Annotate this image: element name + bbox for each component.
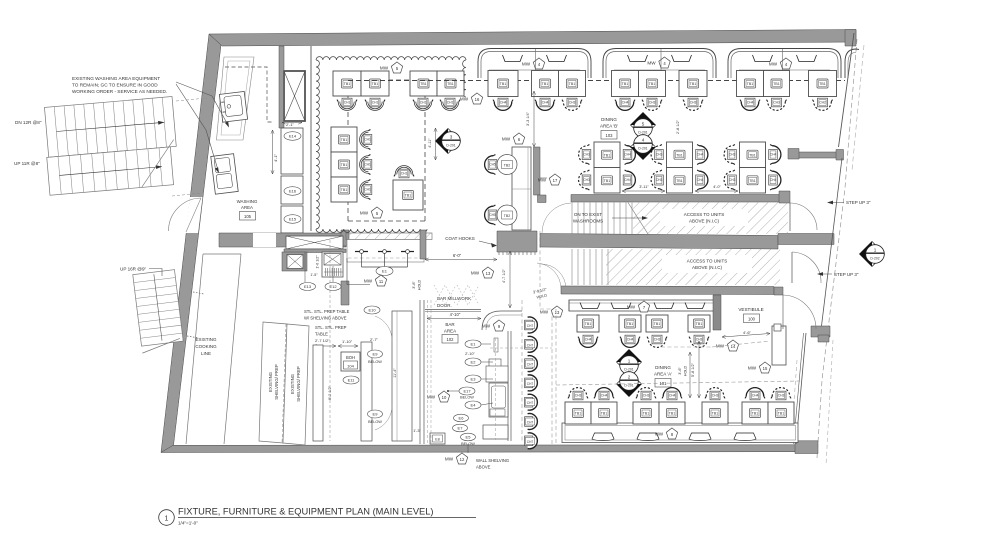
- svg-text:MW: MW: [380, 66, 389, 71]
- svg-text:DINING: DINING: [655, 365, 671, 370]
- svg-text:CH4: CH4: [770, 153, 777, 157]
- svg-text:TB1: TB1: [649, 82, 655, 86]
- svg-text:3'-8": 3'-8": [412, 281, 416, 289]
- svg-text:CH4: CH4: [770, 178, 777, 182]
- svg-text:CH3: CH3: [654, 338, 661, 342]
- svg-text:TB1: TB1: [819, 82, 825, 86]
- svg-text:CH1: CH1: [364, 138, 371, 142]
- svg-text:STL. STL. PREP TABLE: STL. STL. PREP TABLE: [304, 309, 350, 314]
- svg-text:E8: E8: [435, 438, 439, 442]
- svg-text:FIXTURE, FURNITURE & EQUIPMENT: FIXTURE, FURNITURE & EQUIPMENT PLAN (MAI…: [178, 507, 434, 517]
- svg-text:CH4: CH4: [697, 178, 704, 182]
- svg-text:CH3: CH3: [583, 153, 590, 157]
- svg-text:CH3: CH3: [575, 394, 582, 398]
- svg-text:TB1: TB1: [344, 82, 350, 86]
- svg-text:1: 1: [165, 516, 169, 523]
- svg-text:MW: MW: [769, 62, 778, 67]
- svg-text:6'-0": 6'-0": [453, 253, 462, 258]
- svg-text:TB1: TB1: [669, 412, 675, 416]
- svg-text:STL. STL. PREP: STL. STL. PREP: [315, 325, 347, 330]
- svg-text:2'-10": 2'-10": [465, 352, 475, 356]
- svg-text:CH3: CH3: [643, 394, 650, 398]
- svg-text:TB1: TB1: [447, 82, 453, 86]
- svg-text:SHELVING/ PREP: SHELVING/ PREP: [274, 364, 279, 400]
- svg-text:MW: MW: [540, 310, 549, 315]
- svg-text:ON TO EXIST: ON TO EXIST: [574, 212, 603, 217]
- svg-text:13: 13: [486, 271, 491, 276]
- svg-text:MW: MW: [655, 432, 664, 437]
- svg-text:CH1: CH1: [420, 101, 427, 105]
- svg-text:102: 102: [447, 337, 455, 342]
- svg-text:CH3: CH3: [656, 178, 663, 182]
- svg-text:12: 12: [460, 457, 465, 462]
- svg-text:MW: MW: [460, 97, 469, 102]
- svg-text:CH3: CH3: [583, 178, 590, 182]
- svg-text:TB1: TB1: [405, 194, 411, 198]
- svg-text:TB1: TB1: [372, 82, 378, 86]
- svg-text:4: 4: [642, 137, 645, 142]
- svg-text:ACCESS TO UNITS: ACCESS TO UNITS: [684, 212, 725, 217]
- svg-text:AREA 'B': AREA 'B': [600, 124, 618, 129]
- svg-text:4'-0": 4'-0": [713, 185, 721, 189]
- svg-text:ABOVE (N.I.C): ABOVE (N.I.C): [692, 265, 723, 270]
- svg-text:STEP UP 3": STEP UP 3": [846, 200, 871, 205]
- svg-text:TB1: TB1: [749, 179, 755, 183]
- svg-text:100: 100: [748, 317, 756, 322]
- svg-text:CH1: CH1: [372, 101, 379, 105]
- svg-text:TB1: TB1: [341, 188, 347, 192]
- svg-text:4'-10": 4'-10": [450, 312, 461, 317]
- svg-text:TB1: TB1: [643, 412, 649, 416]
- svg-text:MW: MW: [445, 457, 454, 462]
- svg-text:EXISTING: EXISTING: [268, 371, 273, 392]
- svg-text:4'-7 1/2": 4'-7 1/2": [502, 268, 506, 283]
- svg-text:D-201: D-201: [446, 144, 455, 148]
- svg-text:COAT HOOKS: COAT HOOKS: [445, 236, 475, 241]
- svg-text:D-201: D-201: [624, 368, 633, 372]
- svg-text:E9: E9: [373, 352, 379, 357]
- svg-text:11'-4": 11'-4": [393, 368, 397, 378]
- svg-text:CH7: CH7: [527, 324, 534, 328]
- svg-text:CH1: CH1: [364, 163, 371, 167]
- svg-text:TB1: TB1: [676, 179, 682, 183]
- svg-text:WASHING: WASHING: [237, 199, 258, 204]
- svg-text:E4: E4: [471, 403, 477, 408]
- svg-text:TB1: TB1: [542, 82, 548, 86]
- svg-text:TB1: TB1: [712, 412, 718, 416]
- svg-text:3: 3: [450, 134, 453, 139]
- svg-text:1'-5": 1'-5": [310, 273, 318, 277]
- svg-text:TB1: TB1: [604, 153, 610, 157]
- svg-text:5'-8 1/2": 5'-8 1/2": [691, 362, 695, 377]
- svg-text:E3: E3: [471, 377, 477, 382]
- svg-text:TB1: TB1: [604, 179, 610, 183]
- svg-text:CH7: CH7: [527, 363, 534, 367]
- svg-text:SHELVING/ PREP: SHELVING/ PREP: [296, 366, 301, 402]
- svg-text:BELOW: BELOW: [368, 420, 382, 424]
- svg-text:TB1: TB1: [676, 153, 682, 157]
- svg-text:BELOW: BELOW: [460, 396, 474, 400]
- svg-text:2'-7 1/2": 2'-7 1/2": [315, 338, 330, 343]
- svg-text:10: 10: [442, 395, 447, 400]
- svg-text:COOKING: COOKING: [195, 344, 217, 349]
- svg-text:CH2: CH2: [819, 101, 826, 105]
- svg-text:CH4: CH4: [697, 153, 704, 157]
- svg-text:103: 103: [606, 133, 614, 138]
- svg-text:2'-8 1/2": 2'-8 1/2": [676, 119, 680, 134]
- svg-text:CH4: CH4: [627, 338, 634, 342]
- svg-text:WASHROOMS: WASHROOMS: [573, 219, 603, 224]
- svg-text:TB1: TB1: [500, 82, 506, 86]
- svg-text:BAR: BAR: [445, 322, 455, 327]
- svg-text:E6: E6: [459, 416, 465, 421]
- svg-text:CH4: CH4: [585, 338, 592, 342]
- svg-text:BELOW: BELOW: [368, 360, 382, 364]
- svg-text:TB1: TB1: [690, 82, 696, 86]
- svg-text:CH3: CH3: [773, 101, 780, 105]
- svg-text:E9: E9: [373, 412, 379, 417]
- svg-text:TB1: TB1: [341, 163, 347, 167]
- svg-text:E13: E13: [304, 284, 312, 289]
- svg-text:17: 17: [553, 178, 558, 183]
- svg-text:HOLD: HOLD: [684, 365, 688, 376]
- svg-text:MW: MW: [748, 366, 757, 371]
- svg-text:TB1: TB1: [627, 322, 633, 326]
- svg-text:16: 16: [475, 97, 480, 102]
- svg-text:CH3: CH3: [656, 153, 663, 157]
- svg-text:CH4: CH4: [669, 394, 676, 398]
- svg-text:3'-3 1/4": 3'-3 1/4": [526, 111, 530, 126]
- svg-text:CH1: CH1: [401, 172, 408, 176]
- svg-text:CH4: CH4: [747, 101, 754, 105]
- svg-text:WALL SHELVING: WALL SHELVING: [476, 458, 509, 463]
- svg-text:MW: MW: [502, 137, 511, 142]
- svg-text:TB1: TB1: [569, 82, 575, 86]
- svg-text:11: 11: [379, 279, 384, 284]
- svg-text:CH4: CH4: [624, 153, 631, 157]
- svg-text:AREA 'A': AREA 'A': [654, 372, 672, 377]
- svg-text:CH7: CH7: [527, 440, 534, 444]
- svg-text:2'-7": 2'-7": [370, 337, 379, 342]
- svg-text:ACCESS TO UNITS: ACCESS TO UNITS: [687, 259, 728, 264]
- svg-text:CH4: CH4: [542, 101, 549, 105]
- svg-text:VESTIBULE: VESTIBULE: [738, 307, 763, 312]
- svg-text:MW: MW: [522, 62, 531, 67]
- svg-text:TB1: TB1: [747, 82, 753, 86]
- svg-text:EXISTING: EXISTING: [290, 373, 295, 394]
- svg-text:CH3: CH3: [690, 101, 697, 105]
- svg-text:DN 12R @8": DN 12R @8": [15, 120, 42, 125]
- svg-text:AREA: AREA: [241, 205, 253, 210]
- svg-text:E12: E12: [329, 284, 337, 289]
- svg-text:TO REMAIN; GC TO ENSURE IN GOO: TO REMAIN; GC TO ENSURE IN GOOD: [72, 83, 158, 88]
- svg-text:BAR MILLWORK: BAR MILLWORK: [437, 296, 471, 301]
- svg-text:E1: E1: [382, 269, 388, 274]
- svg-text:TB1: TB1: [696, 322, 702, 326]
- svg-text:MW: MW: [627, 305, 636, 310]
- svg-text:CH3: CH3: [569, 101, 576, 105]
- svg-text:E14: E14: [289, 134, 297, 139]
- svg-text:CH3: CH3: [649, 101, 656, 105]
- svg-text:UP 16R @9": UP 16R @9": [120, 267, 146, 272]
- svg-text:CH4: CH4: [622, 101, 629, 105]
- svg-text:1: 1: [628, 358, 631, 363]
- svg-text:W/ SHELVING ABOVE: W/ SHELVING ABOVE: [304, 316, 347, 321]
- svg-text:TB1: TB1: [420, 82, 426, 86]
- svg-text:MW: MW: [538, 178, 547, 183]
- svg-text:CH7: CH7: [527, 421, 534, 425]
- svg-text:15: 15: [763, 366, 768, 371]
- svg-text:TB1: TB1: [341, 138, 347, 142]
- svg-text:1/4"=1'-0": 1/4"=1'-0": [178, 521, 198, 526]
- svg-text:TABLE: TABLE: [315, 332, 328, 337]
- svg-text:CH3: CH3: [729, 178, 736, 182]
- svg-text:E1: E1: [471, 342, 477, 347]
- svg-text:2: 2: [628, 374, 631, 379]
- svg-text:E15: E15: [289, 217, 297, 222]
- svg-text:1'-6 1/2": 1'-6 1/2": [316, 255, 320, 269]
- svg-text:MW: MW: [471, 271, 480, 276]
- svg-text:CH5: CH5: [489, 163, 496, 167]
- svg-text:D-202: D-202: [870, 257, 879, 261]
- svg-text:4'-6": 4'-6": [743, 330, 752, 335]
- svg-text:MW: MW: [360, 211, 369, 216]
- svg-text:D-201: D-201: [638, 147, 647, 151]
- svg-text:E2: E2: [471, 360, 477, 365]
- svg-text:DINING: DINING: [601, 117, 617, 122]
- svg-text:E16: E16: [289, 189, 297, 194]
- svg-text:MW: MW: [364, 279, 373, 284]
- svg-text:ABOVE: ABOVE: [476, 465, 491, 470]
- svg-text:CH1: CH1: [447, 101, 454, 105]
- svg-text:STEP UP 3": STEP UP 3": [834, 272, 859, 277]
- svg-text:13: 13: [555, 310, 560, 315]
- svg-text:D-201: D-201: [638, 131, 647, 135]
- svg-text:TB2: TB2: [504, 164, 510, 168]
- svg-text:CH3: CH3: [729, 153, 736, 157]
- svg-text:105: 105: [244, 214, 252, 219]
- svg-text:D-201: D-201: [624, 384, 633, 388]
- svg-text:AREA: AREA: [444, 329, 456, 334]
- svg-text:3'-6": 3'-6": [678, 367, 682, 375]
- svg-text:CH7: CH7: [527, 343, 534, 347]
- svg-text:BOH: BOH: [346, 355, 355, 360]
- svg-text:MW: MW: [427, 395, 436, 400]
- svg-text:1: 1: [874, 247, 877, 252]
- svg-text:TB2: TB2: [504, 214, 510, 218]
- svg-text:1'-10": 1'-10": [342, 339, 353, 344]
- svg-text:4'-1": 4'-1": [273, 153, 278, 162]
- svg-text:CH4: CH4: [601, 394, 608, 398]
- svg-text:CH4: CH4: [752, 394, 759, 398]
- svg-text:TB1: TB1: [749, 153, 755, 157]
- svg-text:104: 104: [347, 364, 354, 369]
- svg-text:EXISTING WASHING AREA EQUIPMEN: EXISTING WASHING AREA EQUIPMENT: [72, 76, 160, 81]
- svg-text:TB1: TB1: [622, 82, 628, 86]
- svg-text:TB1: TB1: [585, 322, 591, 326]
- svg-text:TB1: TB1: [654, 322, 660, 326]
- svg-text:CH3: CH3: [778, 394, 785, 398]
- svg-text:CH7: CH7: [527, 401, 534, 405]
- svg-text:ABOVE (N.I.C): ABOVE (N.I.C): [689, 219, 720, 224]
- svg-text:CH1: CH1: [364, 188, 371, 192]
- svg-text:3'-11": 3'-11": [639, 185, 649, 189]
- svg-text:TB1: TB1: [601, 412, 607, 416]
- svg-text:CH1: CH1: [344, 101, 351, 105]
- svg-text:EXISTING: EXISTING: [195, 337, 217, 342]
- svg-text:CH4: CH4: [624, 178, 631, 182]
- svg-text:TB1: TB1: [752, 412, 758, 416]
- svg-text:CH4: CH4: [500, 101, 507, 105]
- svg-text:CH7: CH7: [527, 382, 534, 386]
- svg-text:E11: E11: [348, 378, 356, 383]
- svg-text:E7: E7: [458, 426, 464, 431]
- svg-text:LINE: LINE: [201, 351, 211, 356]
- svg-text:CH5: CH5: [489, 213, 496, 217]
- svg-text:UP 11R @8": UP 11R @8": [14, 161, 40, 166]
- svg-text:E17: E17: [463, 389, 471, 394]
- svg-text:5: 5: [642, 121, 645, 126]
- svg-text:CH3: CH3: [712, 394, 719, 398]
- svg-text:WORKING ORDER - SERVICE AS NEE: WORKING ORDER - SERVICE AS NEEDED.: [72, 89, 167, 94]
- svg-text:TB1: TB1: [575, 412, 581, 416]
- svg-text:E10: E10: [368, 308, 376, 313]
- svg-text:TB1: TB1: [773, 82, 779, 86]
- svg-text:HOLD: HOLD: [418, 279, 422, 290]
- svg-text:TB1: TB1: [778, 412, 784, 416]
- svg-text:4'-11": 4'-11": [428, 138, 432, 148]
- svg-text:MW: MW: [647, 61, 656, 66]
- svg-text:E5: E5: [466, 435, 472, 440]
